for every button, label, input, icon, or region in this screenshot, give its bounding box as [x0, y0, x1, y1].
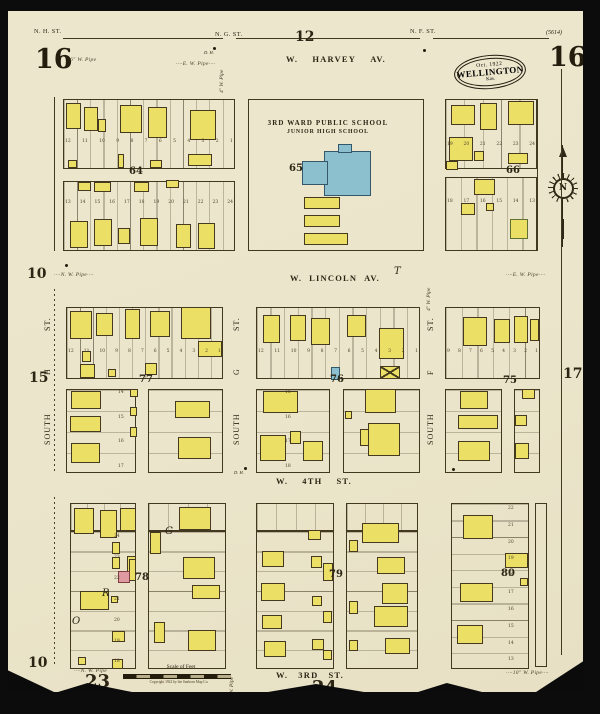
lot-numbers: 121110987654321 — [258, 350, 418, 355]
building-footprint — [312, 639, 324, 650]
building-footprint — [377, 557, 405, 574]
building-footprint — [261, 583, 285, 601]
water-pipe-note: ····10" W. Pipe···· — [506, 671, 549, 677]
plate-reference: (5614) — [546, 30, 562, 36]
building-footprint — [515, 443, 529, 459]
building-footprint — [263, 391, 298, 413]
building-footprint — [148, 107, 167, 138]
building-footprint — [78, 182, 91, 191]
building-footprint — [385, 638, 410, 654]
building-footprint — [150, 160, 162, 168]
building-footprint — [80, 364, 95, 378]
building-footprint — [179, 507, 211, 530]
building-footprint — [183, 557, 215, 579]
building-footprint — [130, 407, 137, 416]
building-footprint — [514, 316, 528, 343]
building-footprint — [118, 228, 130, 244]
building-footprint — [347, 315, 366, 337]
building-footprint — [134, 182, 149, 192]
lot-numbers: 181716151413 — [447, 200, 535, 205]
boundary-line — [537, 99, 538, 251]
boundary-line — [54, 497, 55, 667]
street-label-w-lincoln-av: W.LINCOLNAV. — [290, 274, 380, 283]
hydrant-dot — [244, 467, 247, 470]
adjacent-sheet-10-lower: 10 — [28, 656, 47, 670]
building-footprint — [304, 215, 340, 227]
boundary-line — [433, 38, 549, 39]
building-footprint — [94, 219, 112, 246]
compass-arrowhead-icon — [559, 147, 567, 157]
building-footprint — [70, 221, 88, 248]
building-footprint — [460, 391, 488, 409]
street-label-w-harvey-av: W.HARVEYAV. — [286, 55, 386, 64]
building-footprint — [290, 315, 306, 341]
water-pipe-note: 4" W. Pipe — [427, 259, 433, 311]
building-footprint — [365, 389, 396, 413]
stamp-state: Kas. — [486, 77, 495, 83]
building-footprint — [130, 389, 138, 397]
building-footprint — [458, 415, 498, 429]
block-tier — [256, 503, 334, 531]
building-footprint — [98, 119, 106, 132]
building-footprint — [474, 179, 495, 195]
building-footprint — [530, 319, 539, 341]
building-footprint — [311, 318, 330, 345]
building-footprint — [311, 556, 322, 568]
building-footprint — [304, 233, 348, 245]
building-footprint — [515, 415, 527, 426]
building-footprint — [312, 596, 322, 606]
adjacent-sheet-10-upper: 10 — [27, 267, 46, 281]
block-number-76: 76 — [330, 375, 344, 385]
boundary-line — [561, 69, 562, 655]
building-footprint — [78, 657, 86, 665]
sheet-number-right: 16 — [549, 42, 583, 73]
water-pipe-note: 4" W. Pipe — [220, 47, 226, 93]
building-footprint — [449, 137, 473, 161]
building-footprint — [451, 105, 475, 125]
building-footprint — [349, 601, 358, 614]
building-footprint — [457, 625, 483, 644]
building-footprint — [260, 435, 286, 461]
lot-numbers: 987654321 — [447, 350, 538, 355]
scale-bar — [123, 674, 231, 679]
building-footprint — [349, 540, 358, 552]
building-footprint — [461, 203, 475, 215]
building-footprint — [374, 606, 408, 627]
building-footprint — [154, 622, 165, 643]
hydrant-label: D. H. — [204, 51, 214, 56]
compass-north-label: N — [553, 178, 574, 199]
building-footprint — [66, 103, 81, 129]
script-mark: G — [165, 527, 173, 537]
building-footprint — [262, 551, 284, 567]
building-footprint — [349, 640, 358, 651]
lot-numbers: 131415161718192021222324 — [65, 201, 233, 206]
building-footprint — [308, 530, 321, 540]
block-number-79: 79 — [329, 570, 343, 580]
building-footprint — [178, 437, 211, 459]
building-footprint — [190, 110, 216, 140]
hydrant-dot — [126, 675, 129, 678]
building-footprint — [120, 105, 142, 133]
adjacent-sheet-12: 12 — [295, 30, 314, 44]
boundary-line — [54, 289, 55, 473]
building-footprint — [362, 523, 399, 543]
building-footprint — [68, 160, 77, 168]
building-footprint — [463, 515, 493, 539]
script-mark: R — [102, 589, 110, 599]
block-number-75: 75 — [503, 376, 517, 386]
building-footprint — [338, 144, 352, 153]
building-footprint — [181, 307, 211, 339]
block-number-78: 78 — [135, 573, 149, 583]
street-label-south-g-st: SOUTHGST. — [233, 317, 241, 445]
building-footprint — [140, 218, 158, 246]
building-footprint — [130, 427, 137, 437]
building-footprint — [522, 389, 535, 399]
sheet-number-left: 16 — [35, 44, 73, 75]
building-footprint — [446, 161, 458, 170]
building-footprint — [480, 103, 497, 130]
building-footprint — [324, 151, 371, 196]
building-footprint — [188, 630, 216, 651]
building-footprint — [368, 423, 400, 456]
building-footprint — [120, 508, 136, 531]
building-footprint — [380, 366, 400, 379]
building-footprint — [198, 223, 215, 249]
building-footprint — [70, 311, 92, 339]
water-pipe-note: ····N. W. Pipe···· — [54, 273, 94, 279]
building-footprint — [463, 317, 487, 346]
building-footprint — [263, 315, 280, 343]
building-footprint — [94, 182, 111, 192]
building-footprint — [84, 107, 98, 131]
building-footprint — [74, 508, 94, 534]
building-footprint — [508, 101, 534, 125]
street-label-n-h-st: N. H. ST. — [34, 29, 61, 35]
building-footprint — [108, 369, 116, 377]
block-number-65: 65 — [289, 164, 303, 174]
building-footprint — [303, 441, 323, 461]
building-footprint — [175, 401, 210, 418]
building-footprint — [345, 411, 352, 419]
street-label-south-f-st: SOUTHFST. — [427, 317, 435, 445]
building-footprint — [71, 391, 101, 409]
building-footprint — [192, 585, 220, 599]
block-number-66: 66 — [506, 166, 520, 176]
block-tier — [535, 503, 547, 667]
sanborn-map-photo: 16 16 (5614) Oct. 1922 WELLINGTON Kas. 3… — [0, 0, 600, 714]
block-number-77: 77 — [139, 375, 153, 385]
lot-numbers: 121110987654321 — [68, 350, 221, 355]
building-footprint — [188, 154, 212, 166]
boundary-line — [63, 38, 223, 39]
street-label-n-f-st: N. F. ST. — [410, 29, 436, 35]
building-footprint — [323, 650, 332, 660]
hydrant-dot — [65, 264, 68, 267]
water-pipe-note: ····E. W. Pipe···· — [176, 62, 215, 68]
stamp-date: Oct. 1922 — [476, 61, 503, 69]
building-footprint — [460, 583, 493, 602]
hydrant-dot — [452, 468, 455, 471]
building-footprint — [166, 180, 179, 188]
map-sheet: 16 16 (5614) Oct. 1922 WELLINGTON Kas. 3… — [8, 11, 583, 692]
boundary-line — [54, 97, 55, 251]
hydrant-label: D. H. — [234, 471, 244, 476]
wellington-date-stamp: Oct. 1922 WELLINGTON Kas. — [453, 52, 528, 92]
script-mark: T — [394, 267, 401, 277]
building-footprint — [458, 441, 490, 461]
compass-rose: N — [548, 145, 578, 247]
boundary-line — [236, 38, 420, 39]
building-footprint — [71, 443, 100, 463]
building-footprint — [304, 197, 340, 209]
building-footprint — [70, 416, 101, 432]
building-footprint — [264, 641, 286, 657]
building-footprint — [125, 309, 140, 339]
building-footprint — [118, 154, 124, 168]
lot-numbers: 15161718 — [285, 391, 291, 469]
copyright-microtext: Copyright 1922 by the Sanborn Map Co. — [134, 680, 224, 684]
script-mark: O — [72, 617, 80, 627]
building-footprint — [510, 219, 528, 239]
building-footprint — [323, 611, 332, 623]
water-pipe-note: ····N. W. Pipe — [74, 669, 107, 675]
building-footprint — [508, 153, 528, 164]
adjacent-sheet-17: 17 — [563, 367, 582, 381]
building-footprint — [302, 161, 328, 185]
water-pipe-note: ····E. W. Pipe···· — [506, 273, 545, 279]
building-footprint — [290, 431, 301, 444]
lot-numbers: 22212019181716151413 — [508, 507, 514, 663]
water-pipe-note: 6" W. Pipe — [70, 58, 96, 64]
block-number-64: 64 — [129, 167, 143, 177]
adjacent-sheet-15: 15 — [29, 371, 48, 385]
stamp-city: WELLINGTON — [456, 65, 524, 80]
lot-numbers: 24232221201918 — [114, 535, 120, 665]
building-footprint — [262, 615, 282, 629]
building-footprint — [96, 313, 113, 336]
building-footprint — [474, 151, 484, 161]
building-footprint — [520, 578, 528, 586]
hydrant-dot — [423, 49, 426, 52]
street-label-n-g-st: N. G. ST. — [215, 32, 242, 38]
lot-numbers: 14151617 — [118, 391, 124, 469]
lot-numbers: 192021222324 — [447, 143, 535, 148]
building-footprint — [150, 311, 170, 337]
water-pipe-note: E. W. Pipe — [230, 656, 236, 692]
lot-numbers: 121110987654321 — [65, 140, 233, 145]
street-label-w-4th-st: W.4THST. — [276, 477, 352, 486]
building-footprint — [494, 319, 510, 343]
building-footprint — [176, 224, 191, 248]
block-tier — [514, 389, 540, 473]
building-footprint — [150, 532, 161, 554]
building-footprint — [382, 583, 408, 604]
